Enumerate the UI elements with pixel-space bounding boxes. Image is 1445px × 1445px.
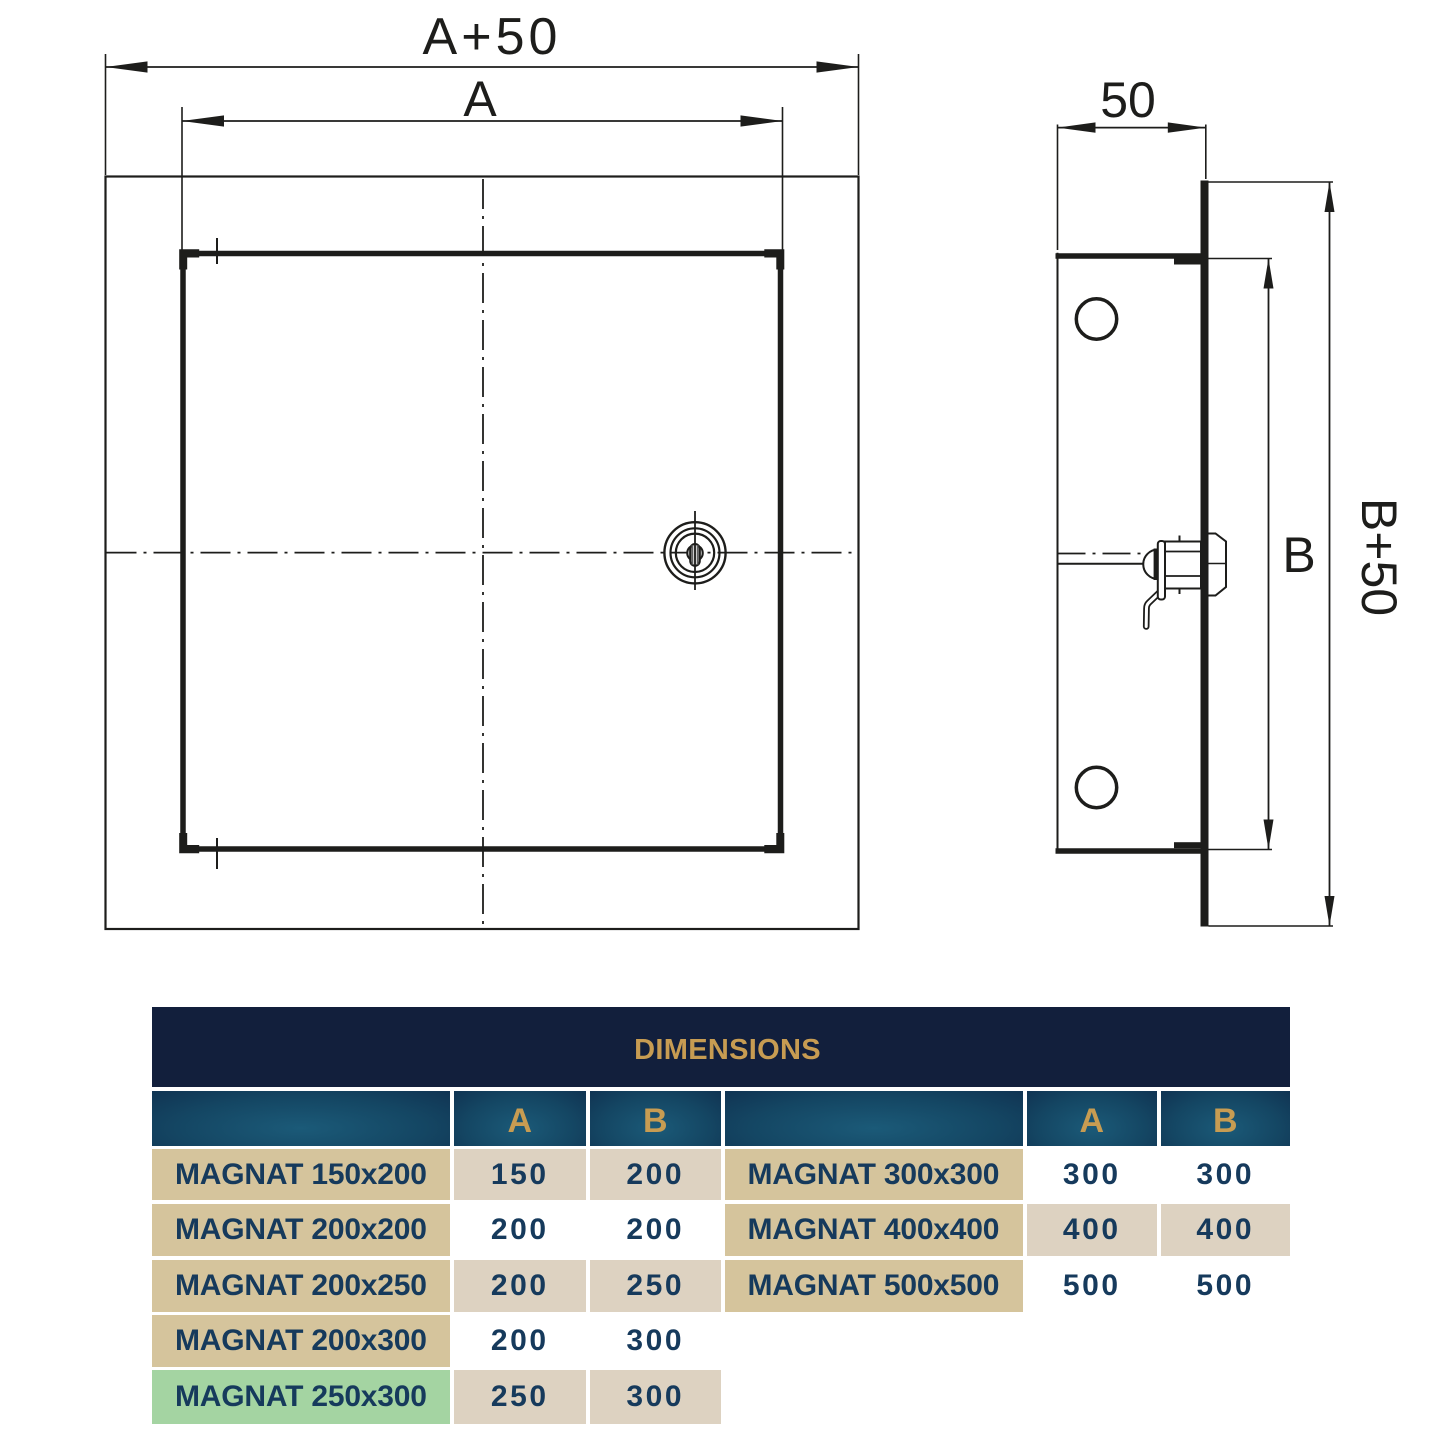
svg-text:B: B xyxy=(1282,527,1315,583)
svg-text:50: 50 xyxy=(1100,72,1156,128)
svg-text:A+50: A+50 xyxy=(423,8,562,66)
svg-text:A: A xyxy=(463,71,497,127)
svg-text:B+50: B+50 xyxy=(1351,498,1407,616)
